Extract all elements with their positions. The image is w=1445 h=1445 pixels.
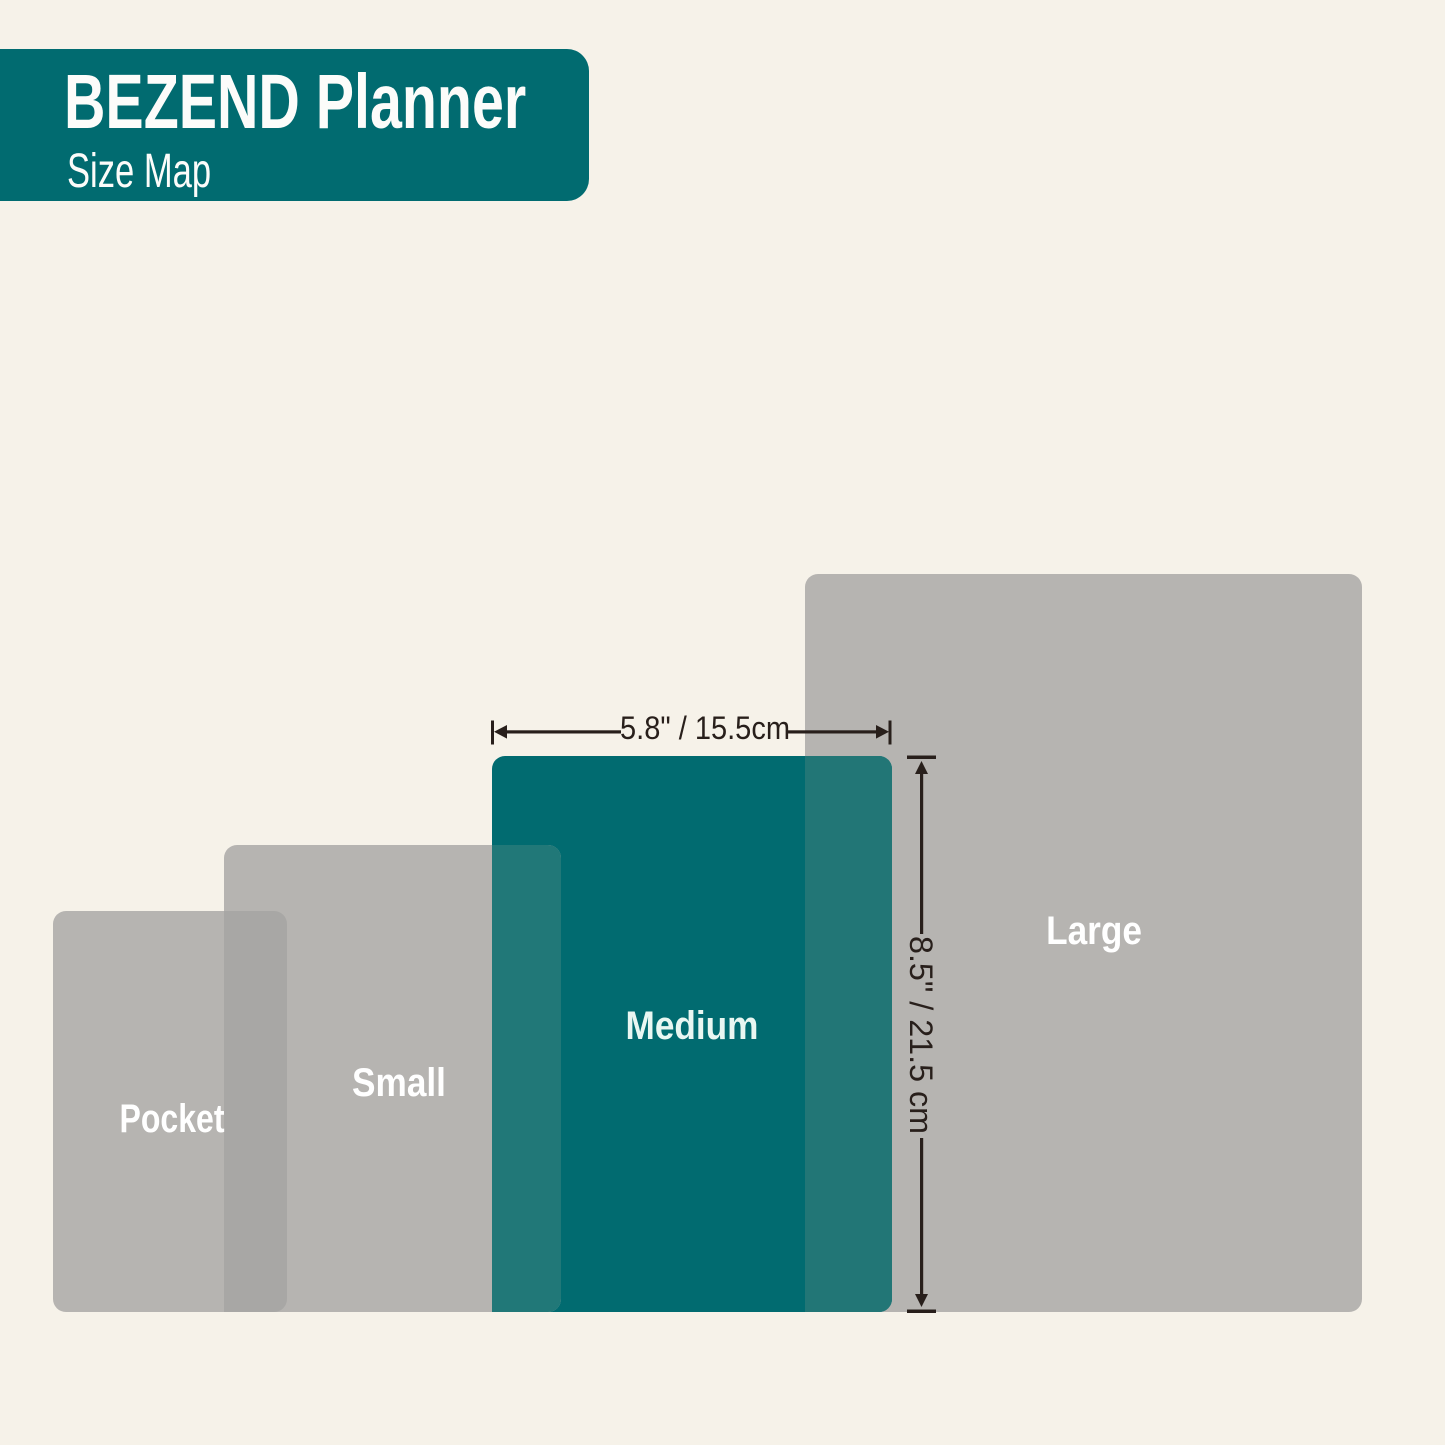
svg-text:5.8" / 15.5cm: 5.8" / 15.5cm bbox=[620, 710, 790, 746]
svg-text:8.5" / 21.5 cm: 8.5" / 21.5 cm bbox=[903, 936, 939, 1134]
